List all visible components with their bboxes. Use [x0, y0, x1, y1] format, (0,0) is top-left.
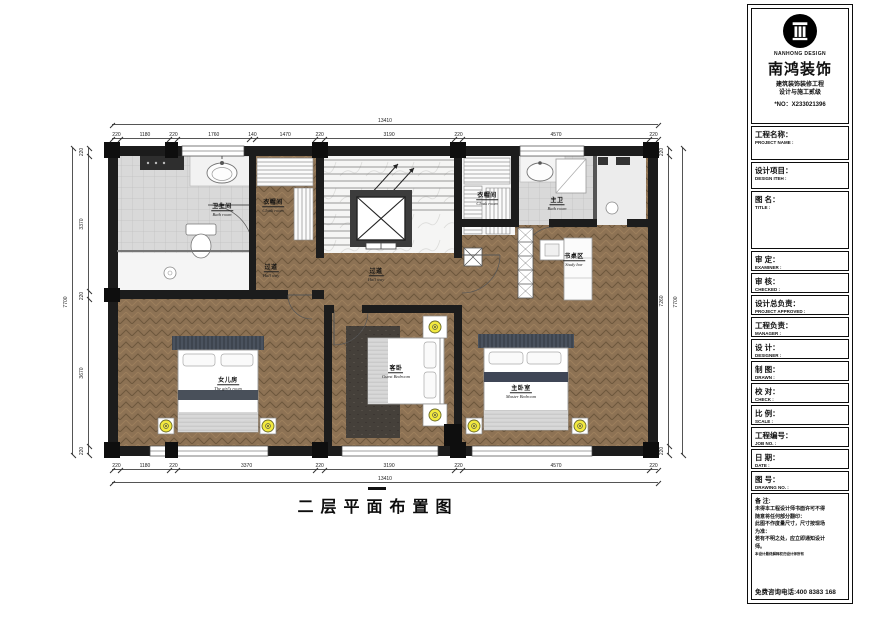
dim-value: 13410 [378, 476, 392, 482]
pillow [424, 372, 436, 398]
dim-value: 220 [454, 463, 462, 469]
lamp-icon [429, 409, 441, 421]
floor-plan [55, 105, 700, 505]
lamp-icon [429, 321, 441, 333]
dim-value: 220 [315, 463, 323, 469]
lamp-icon [468, 420, 480, 432]
dim-value: 3370 [241, 463, 252, 469]
dim-value: 220 [649, 463, 657, 469]
field-label-cn: 图 号： [755, 474, 845, 485]
laundry-floor [117, 253, 253, 295]
dim-value: 13410 [378, 118, 392, 124]
blanket [178, 412, 258, 432]
field-label-cn: 设计项目： [755, 165, 845, 176]
headboard [172, 336, 264, 350]
field-box-13: 图 号：DRAWING NO. : [751, 471, 849, 491]
field-box-5: 设计总负责：PROJECT APPROVED : [751, 295, 849, 315]
dim-value: 3670 [79, 367, 85, 378]
vanity-counter [140, 156, 184, 170]
field-box-8: 制 图：DRAWN : [751, 361, 849, 381]
notes-lines: 未得本工程设计师书面许可不得随意将任何部分翻印：此图不作度量尺寸，尺寸按现场为准… [755, 506, 845, 551]
dim-value: 220 [315, 132, 323, 138]
company-name-cn: 南鸿装饰 [768, 58, 832, 79]
field-box-10: 比 例：SCALE : [751, 405, 849, 425]
elevator [350, 190, 412, 249]
field-label-cn: 比 例： [755, 408, 845, 419]
note-line: 随意将任何部分翻印： [755, 514, 845, 522]
dim-value: 220 [169, 132, 177, 138]
sink-icon [527, 163, 553, 181]
field-label-cn: 设计总负责： [755, 298, 845, 309]
faucet-icon [220, 161, 224, 165]
dim-right-segments: 2207260220 [668, 148, 669, 455]
field-box-12: 日 期：DATE : [751, 449, 849, 469]
company-name-en: NANHONG DESIGN [774, 51, 826, 57]
company-certification: 建筑装饰装修工程 设计与施工贰级 [776, 81, 824, 97]
wardrobe-hanger-column [518, 228, 533, 298]
field-label-cn: 工程名称： [755, 129, 845, 140]
field-label-en: EXAMINER : [755, 265, 845, 270]
lamp-icon [160, 420, 172, 432]
field-label-en: CHECK : [755, 397, 845, 402]
dim-value: 220 [659, 446, 665, 454]
chair [545, 244, 559, 256]
dim-value: 4570 [550, 132, 561, 138]
dim-value: 220 [659, 148, 665, 156]
field-label-en: SCALE : [755, 419, 845, 424]
pillow [424, 342, 436, 368]
pillow [527, 352, 561, 364]
company-header: NANHONG DESIGN 南鸿装饰 建筑装饰装修工程 设计与施工贰级 *NO… [751, 8, 849, 124]
field-box-3: 审 定：EXAMINER : [751, 251, 849, 271]
washer-icon [164, 267, 176, 279]
company-logo-icon [783, 14, 817, 48]
field-label-en: DESIGN ITEH : [755, 176, 845, 181]
window [342, 446, 438, 456]
dim-left-segments: 22033702203670220 [88, 148, 89, 455]
field-box-1: 设计项目：DESIGN ITEH : [751, 162, 849, 189]
dim-right-overall: 7700 [682, 148, 683, 455]
notes-fine-print: 本设计最终解释权归设计师所有 [755, 552, 845, 557]
window [182, 146, 244, 156]
field-label-cn: 审 核： [755, 276, 845, 287]
pillow [221, 354, 253, 366]
dim-value: 220 [454, 132, 462, 138]
dim-bottom-segments: 2201180220337022031902204570220 [112, 469, 658, 470]
dim-value: 220 [79, 446, 85, 454]
field-label-en: JOB NO. : [755, 441, 845, 446]
pillow [489, 352, 523, 364]
dim-value: 7700 [673, 296, 679, 307]
notes-box: 备 注: 未得本工程设计师书面许可不得随意将任何部分翻印：此图不作度量尺寸，尺寸… [751, 493, 849, 600]
field-box-11: 工程编号：JOB NO. : [751, 427, 849, 447]
note-line: 若有不明之处，应立即通知设计 [755, 536, 845, 544]
field-label-cn: 制 图： [755, 364, 845, 375]
lamp-icon [262, 420, 274, 432]
hotline-phone: 免费咨询电话:400 8383 168 [755, 586, 845, 597]
field-label-cn: 工程负责： [755, 320, 845, 331]
license-number: *NO：X233021396 [774, 99, 825, 108]
field-label-cn: 设 计： [755, 342, 845, 353]
title-block: NANHONG DESIGN 南鸿装饰 建筑装饰装修工程 设计与施工贰级 *NO… [747, 4, 853, 604]
dim-value: 220 [112, 132, 120, 138]
field-label-cn: 工程编号： [755, 430, 845, 441]
toilet-tank [186, 224, 216, 235]
dim-left-overall: 7700 [72, 148, 73, 455]
dim-value: 7260 [659, 296, 665, 307]
dim-value: 1180 [140, 132, 151, 138]
field-label-en: MANAGER : [755, 331, 845, 336]
headboard [478, 334, 574, 348]
study-cabinet [564, 238, 592, 300]
field-label-cn: 审 定： [755, 254, 845, 265]
field-box-6: 工程负责：MANAGER : [751, 317, 849, 337]
dim-value: 3190 [384, 463, 395, 469]
blanket [368, 338, 388, 404]
window [472, 446, 592, 456]
field-label-cn: 图 名： [755, 194, 845, 205]
bed-throw [484, 372, 568, 382]
note-line: 此图不作度量尺寸，尺寸按现场 [755, 521, 845, 529]
stool-icon [606, 202, 618, 214]
field-label-en: DRAWING NO. : [755, 485, 845, 490]
dim-value: 3190 [384, 132, 395, 138]
field-box-7: 设 计：DESIGNER : [751, 339, 849, 359]
dim-value: 220 [79, 291, 85, 299]
drawing-title: 二层平面布置图 [258, 493, 498, 517]
notes-label: 备 注: [755, 496, 845, 505]
dim-value: 1760 [208, 132, 219, 138]
toilet-icon [191, 234, 211, 258]
dim-top-overall: 13410 [112, 124, 658, 125]
note-line: 师。 [755, 544, 845, 552]
dim-bottom-overall: 13410 [112, 482, 658, 483]
field-box-4: 审 核：CHECKED : [751, 273, 849, 293]
dim-value: 220 [79, 148, 85, 156]
dim-value: 3370 [79, 218, 85, 229]
window [520, 146, 584, 156]
field-label-en: DATE : [755, 463, 845, 468]
note-line: 未得本工程设计师书面许可不得 [755, 506, 845, 514]
field-label-en: DESIGNER : [755, 353, 845, 358]
field-label-cn: 日 期： [755, 452, 845, 463]
dim-value: 220 [649, 132, 657, 138]
dim-value: 4570 [550, 463, 561, 469]
dim-top-segments: 22011802201760140147022031902204570220 [112, 138, 658, 139]
dim-value: 220 [112, 463, 120, 469]
field-label-en: DRAWN : [755, 375, 845, 380]
blanket [484, 410, 568, 430]
dim-value: 220 [169, 463, 177, 469]
field-box-9: 校 对：CHECK : [751, 383, 849, 403]
dim-value: 7700 [63, 296, 69, 307]
field-label-en: CHECKED : [755, 287, 845, 292]
dim-value: 1180 [140, 463, 151, 469]
field-label-cn: 校 对： [755, 386, 845, 397]
drawing-sheet: { "sheet": { "drawing_title": "二层平面布置图",… [0, 0, 895, 633]
note-line: 为准： [755, 529, 845, 537]
field-label-en: PROJECT APPROVED : [755, 309, 845, 314]
field-box-2: 图 名：TITLE : [751, 191, 849, 249]
field-label-en: PROJECT NAME : [755, 140, 845, 145]
dim-value: 1470 [280, 132, 291, 138]
pillow [183, 354, 215, 366]
scale-mark [368, 487, 386, 490]
sink-icon [207, 163, 237, 183]
field-box-0: 工程名称：PROJECT NAME : [751, 126, 849, 160]
field-label-en: TITLE : [755, 205, 845, 210]
bed-throw [178, 390, 258, 400]
lamp-icon [574, 420, 586, 432]
